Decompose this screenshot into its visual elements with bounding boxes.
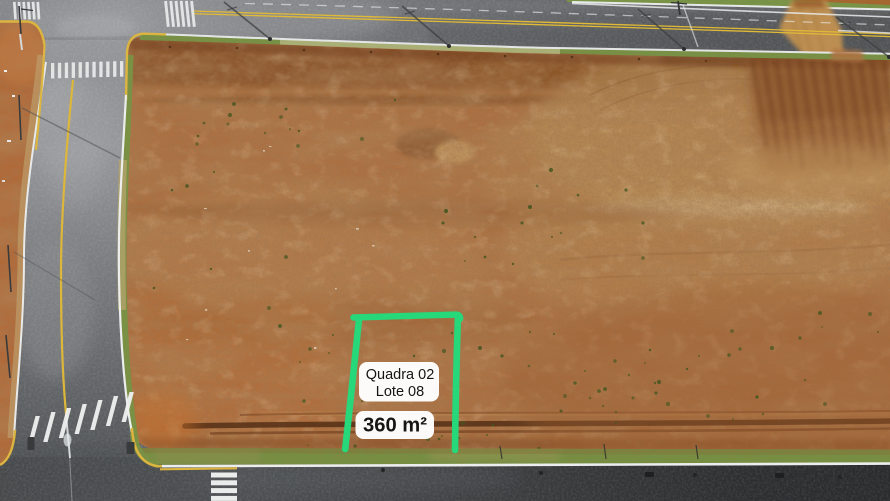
svg-text:360 m²: 360 m² [363, 415, 427, 437]
svg-text:Lote 08: Lote 08 [376, 384, 424, 400]
svg-text:Quadra 02: Quadra 02 [366, 367, 435, 383]
